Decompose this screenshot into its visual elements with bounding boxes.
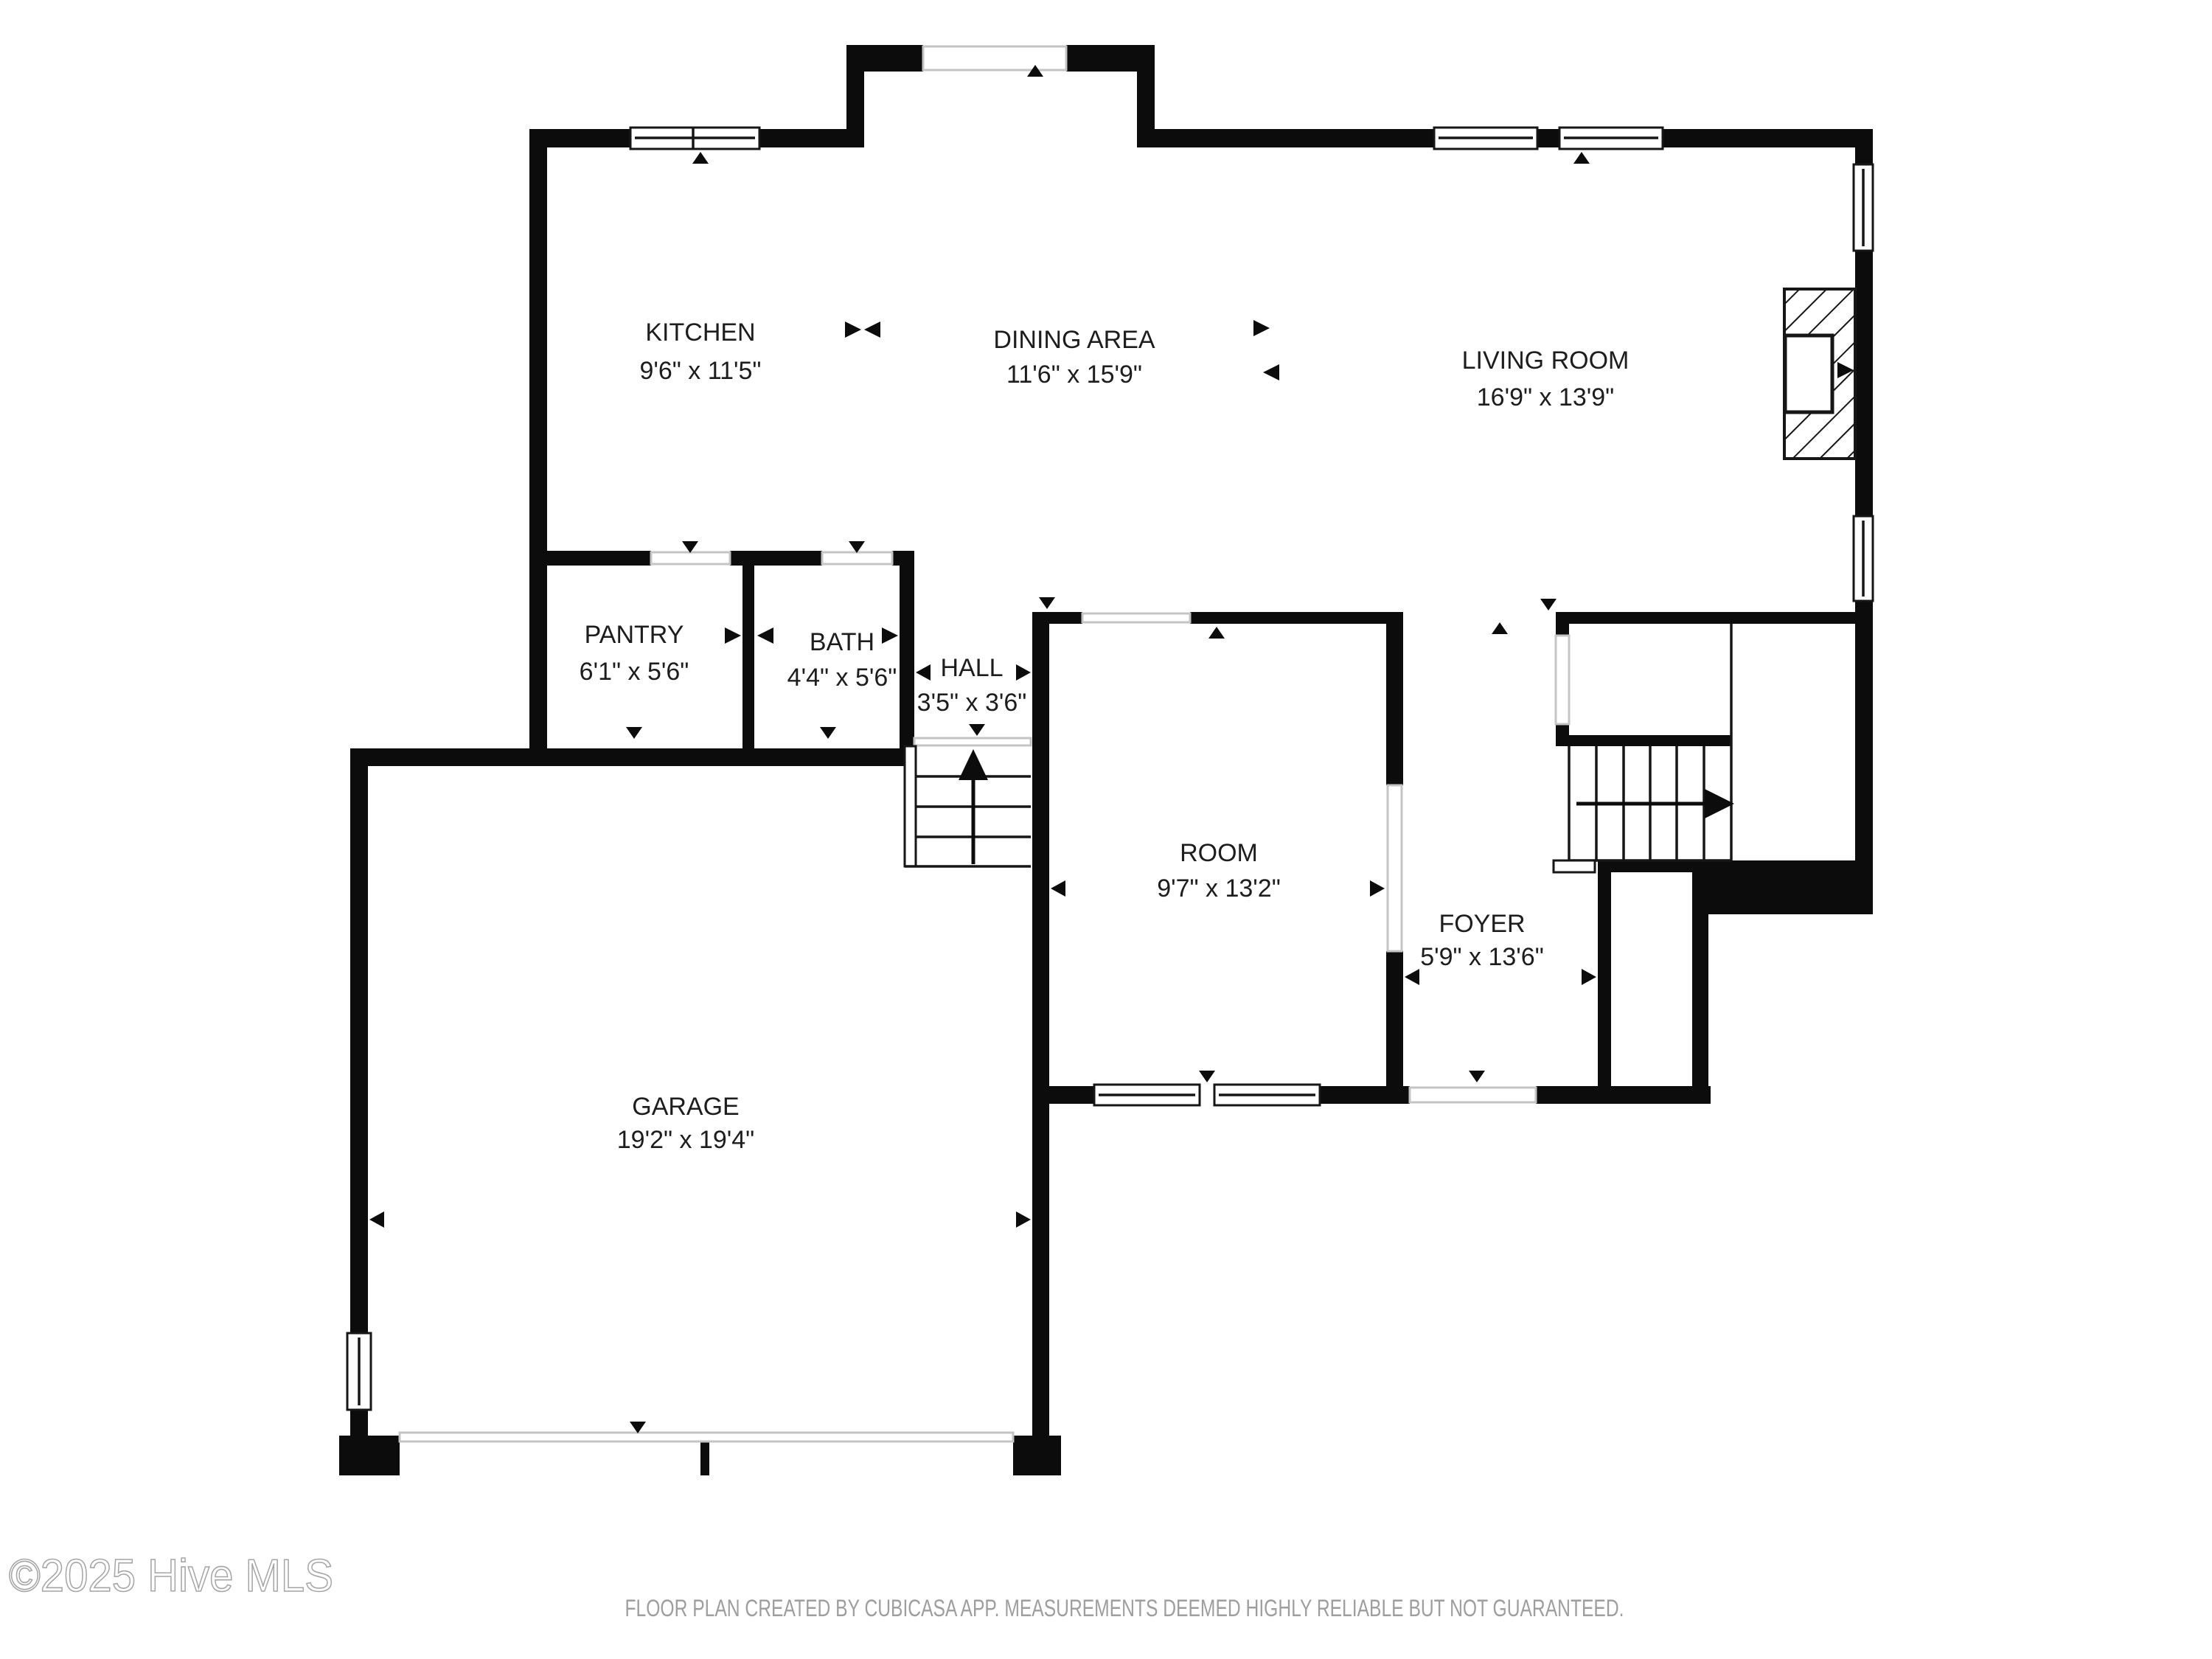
front-door-opening xyxy=(1410,1088,1536,1102)
marker-foyer-entry xyxy=(1492,622,1508,634)
room-divider-opening xyxy=(1388,785,1402,951)
room-label-kitchen: KITCHEN 9'6" x 11'5" xyxy=(639,319,761,385)
marker-hall-bottom xyxy=(969,724,985,736)
marker-room-left xyxy=(1051,880,1065,897)
room-label-bath: BATH 4'4" x 5'6" xyxy=(787,628,897,692)
marker-pantry-right xyxy=(725,627,741,644)
marker-bath-right xyxy=(882,627,898,644)
room-label-garage: GARAGE 19'2" x 19'4" xyxy=(617,1093,754,1154)
marker-kitchen-window xyxy=(692,152,709,164)
room-label-room: ROOM 9'7" x 13'2" xyxy=(1157,839,1281,902)
kitchen-dims: 9'6" x 11'5" xyxy=(639,357,761,385)
marker-bath-left xyxy=(757,627,773,644)
room-label-living: LIVING ROOM 16'9" x 13'9" xyxy=(1462,347,1630,411)
marker-living-left xyxy=(1263,364,1279,380)
kitchen-window xyxy=(630,128,759,149)
room-dims: 9'7" x 13'2" xyxy=(1157,874,1281,902)
marker-pantry-bottom xyxy=(626,727,642,739)
floor-plan: KITCHEN 9'6" x 11'5" DINING AREA 11'6" x… xyxy=(0,0,2212,1659)
marker-hall-left xyxy=(916,664,931,681)
marker-room-window xyxy=(1199,1071,1215,1082)
bay-window-opening xyxy=(923,46,1066,70)
marker-dining-left xyxy=(864,321,880,338)
walls xyxy=(339,45,1873,1475)
windows xyxy=(347,128,1873,1410)
marker-hall-right xyxy=(1016,664,1031,681)
dining-name: DINING AREA xyxy=(993,326,1155,354)
room-label-pantry: PANTRY 6'1" x 5'6" xyxy=(580,621,689,686)
hall-name: HALL xyxy=(940,654,1003,682)
stair-right-arrow-icon xyxy=(1576,789,1734,818)
marker-room-top-left xyxy=(1039,597,1055,609)
marker-landing xyxy=(1540,599,1557,611)
living-name: LIVING ROOM xyxy=(1462,347,1630,375)
stair-bottom-tread xyxy=(1554,860,1595,872)
stair-rail xyxy=(905,746,916,866)
garage-dims: 19'2" x 19'4" xyxy=(617,1126,754,1154)
staircase-front xyxy=(905,746,1031,866)
pantry-dims: 6'1" x 5'6" xyxy=(580,658,689,686)
floor-plan-page: KITCHEN 9'6" x 11'5" DINING AREA 11'6" x… xyxy=(0,0,2212,1659)
living-dims: 16'9" x 13'9" xyxy=(1477,383,1614,411)
marker-bath-bottom xyxy=(820,727,836,739)
room-labels: KITCHEN 9'6" x 11'5" DINING AREA 11'6" x… xyxy=(580,319,1630,1154)
room-label-dining: DINING AREA 11'6" x 15'9" xyxy=(993,326,1155,389)
foyer-name: FOYER xyxy=(1439,910,1525,938)
marker-garage-right xyxy=(1016,1211,1031,1228)
marker-garage-left xyxy=(369,1211,384,1228)
marker-room-door xyxy=(1208,627,1225,639)
marker-foyer-right xyxy=(1582,969,1596,985)
hall-dims: 3'5" x 3'6" xyxy=(917,689,1027,717)
pantry-door-opening xyxy=(651,552,730,564)
marker-living-window xyxy=(1573,152,1590,164)
room-label-foyer: FOYER 5'9" x 13'6" xyxy=(1420,910,1544,971)
footer-disclaimer: FLOOR PLAN CREATED BY CUBICASA APP. MEAS… xyxy=(625,1595,1624,1621)
room-label-hall: HALL 3'5" x 3'6" xyxy=(917,654,1027,717)
room-windows xyxy=(1094,1085,1320,1105)
marker-room-right xyxy=(1370,880,1385,897)
kitchen-name: KITCHEN xyxy=(645,319,755,347)
pantry-name: PANTRY xyxy=(585,621,684,649)
watermark: ©2025 Hive MLS xyxy=(9,1551,333,1601)
dining-dims: 11'6" x 15'9" xyxy=(1006,361,1142,389)
staircase-main xyxy=(1554,624,1734,872)
room-name: ROOM xyxy=(1180,839,1258,867)
marker-dining-right xyxy=(1253,320,1270,336)
bath-dims: 4'4" x 5'6" xyxy=(787,664,897,692)
marker-front-door xyxy=(1469,1071,1485,1082)
room-door-opening xyxy=(1082,613,1190,622)
landing-door-opening xyxy=(1556,636,1569,724)
bath-door-opening xyxy=(822,552,892,564)
garage-window xyxy=(347,1333,371,1410)
garage-name: GARAGE xyxy=(632,1093,739,1121)
bath-name: BATH xyxy=(810,628,874,656)
hall-stair-threshold xyxy=(914,738,1031,745)
garage-door-opening xyxy=(400,1433,1013,1441)
foyer-dims: 5'9" x 13'6" xyxy=(1420,943,1544,971)
marker-foyer-left xyxy=(1405,969,1419,985)
marker-kitchen-right xyxy=(845,321,861,338)
